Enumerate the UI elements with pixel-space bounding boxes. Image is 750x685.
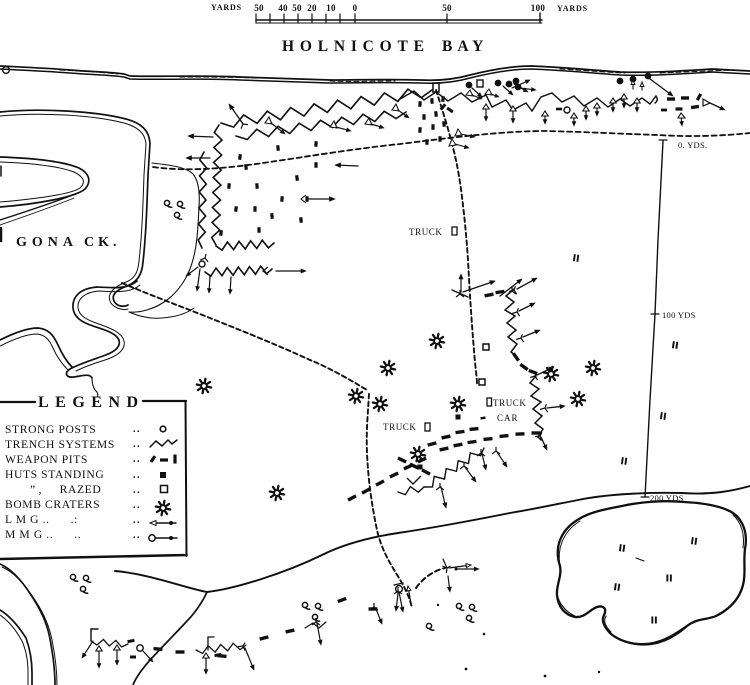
svg-text:..: .. bbox=[133, 500, 141, 511]
svg-text:LEGEND: LEGEND bbox=[38, 394, 145, 411]
svg-text:TRUCK: TRUCK bbox=[409, 227, 443, 237]
svg-text:WEAPON PITS: WEAPON PITS bbox=[5, 453, 88, 466]
svg-text:..: .. bbox=[133, 530, 141, 541]
svg-text:..: .. bbox=[133, 424, 141, 435]
svg-text:100 YDS: 100 YDS bbox=[662, 310, 696, 320]
svg-text:20: 20 bbox=[307, 3, 317, 13]
svg-text:BOMB CRATERS: BOMB CRATERS bbox=[5, 498, 100, 511]
svg-text:10: 10 bbox=[326, 3, 336, 13]
svg-text:GONA: GONA bbox=[16, 235, 78, 250]
svg-text:HOLNICOTE: HOLNICOTE bbox=[282, 38, 430, 55]
svg-text:100: 100 bbox=[531, 3, 546, 13]
svg-text:STRONG POSTS: STRONG POSTS bbox=[5, 423, 96, 436]
svg-text:L M G .. .:: L M G .. .: bbox=[5, 513, 78, 526]
svg-text:0. YDS.: 0. YDS. bbox=[678, 140, 707, 150]
svg-text:CK.: CK. bbox=[84, 235, 121, 250]
svg-text:0: 0 bbox=[353, 3, 358, 13]
svg-text:TRUCK: TRUCK bbox=[493, 398, 527, 408]
svg-text:M M G .. ..: M M G .. .. bbox=[5, 528, 81, 541]
svg-text:50: 50 bbox=[292, 3, 302, 13]
svg-text:..: .. bbox=[133, 485, 141, 496]
svg-text:40: 40 bbox=[278, 3, 288, 13]
svg-text:CAR: CAR bbox=[497, 413, 519, 423]
svg-text:..: .. bbox=[133, 470, 141, 481]
svg-text:50: 50 bbox=[254, 3, 264, 13]
svg-text:50: 50 bbox=[442, 3, 452, 13]
svg-text:YARDS: YARDS bbox=[557, 4, 588, 13]
svg-text:HUTS STANDING: HUTS STANDING bbox=[5, 468, 104, 481]
svg-text:” , RAZED: ” , RAZED bbox=[30, 483, 101, 496]
svg-text:TRUCK: TRUCK bbox=[383, 422, 417, 432]
svg-text:YARDS: YARDS bbox=[211, 3, 242, 12]
svg-text:..: .. bbox=[133, 515, 141, 526]
svg-text:TRENCH SYSTEMS: TRENCH SYSTEMS bbox=[5, 438, 115, 451]
svg-text:BAY: BAY bbox=[442, 38, 488, 55]
svg-text:..: .. bbox=[133, 454, 141, 465]
svg-text:..: .. bbox=[133, 439, 141, 450]
